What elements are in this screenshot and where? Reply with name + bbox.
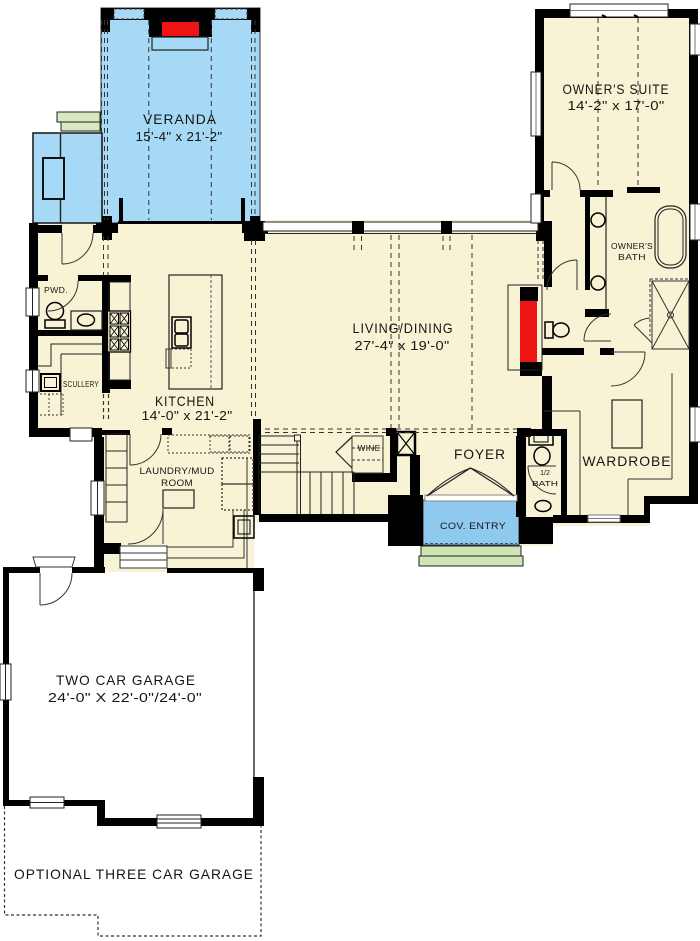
svg-text:ROOM: ROOM	[161, 478, 193, 488]
svg-text:14'-0" x 21'-2": 14'-0" x 21'-2"	[142, 408, 233, 423]
svg-text:LIVING/DINING: LIVING/DINING	[353, 320, 454, 336]
svg-text:PWD.: PWD.	[44, 286, 68, 295]
svg-text:WINE: WINE	[358, 444, 381, 453]
svg-text:1/2: 1/2	[540, 470, 550, 477]
svg-text:BATH: BATH	[618, 253, 646, 262]
svg-text:KITCHEN: KITCHEN	[155, 393, 215, 409]
svg-text:SCULLERY: SCULLERY	[63, 380, 99, 389]
svg-text:BATH: BATH	[532, 481, 558, 488]
svg-text:VERANDA: VERANDA	[143, 111, 217, 127]
svg-text:15'-4" x 21'-2": 15'-4" x 21'-2"	[136, 129, 223, 144]
svg-text:OWNER'S: OWNER'S	[611, 242, 653, 251]
svg-text:14'-2" x 17'-0": 14'-2" x 17'-0"	[568, 98, 665, 113]
svg-text:OPTIONAL THREE CAR GARAGE: OPTIONAL THREE CAR GARAGE	[14, 866, 254, 882]
svg-text:27'-4" x 19'-0": 27'-4" x 19'-0"	[355, 338, 450, 353]
svg-text:LAUNDRY/MUD: LAUNDRY/MUD	[140, 466, 215, 476]
svg-text:24'-0" X 22'-0"/24'-0": 24'-0" X 22'-0"/24'-0"	[48, 690, 202, 705]
svg-text:WARDROBE: WARDROBE	[583, 453, 672, 469]
svg-text:TWO CAR GARAGE: TWO CAR GARAGE	[56, 672, 196, 688]
svg-text:OWNER'S SUITE: OWNER'S SUITE	[563, 81, 670, 97]
svg-text:COV. ENTRY: COV. ENTRY	[440, 521, 506, 532]
svg-text:FOYER: FOYER	[454, 446, 506, 462]
